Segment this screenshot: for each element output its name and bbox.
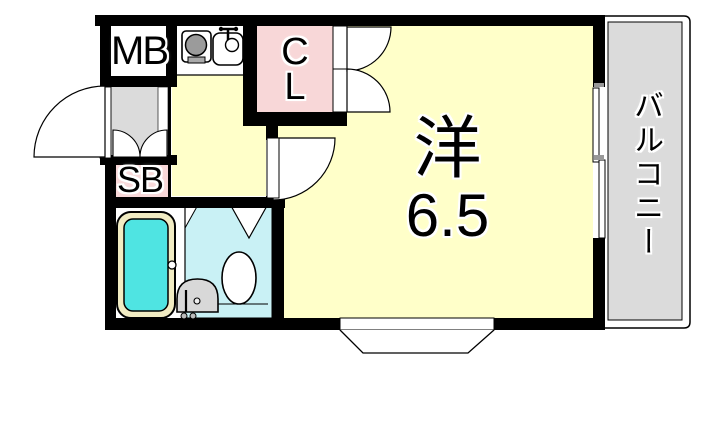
bay-window-bay bbox=[340, 330, 494, 353]
wall-bottom-left-seg bbox=[266, 318, 340, 330]
wall-below-mb bbox=[100, 76, 177, 87]
closet-door-leaf-upper bbox=[333, 26, 347, 69]
sliding-window-cap bbox=[594, 83, 604, 87]
washbasin-foot-left bbox=[181, 313, 187, 319]
main-room-name-label: 洋 bbox=[385, 98, 510, 186]
entrance-door-swing bbox=[34, 86, 105, 157]
washbasin-foot-right bbox=[190, 313, 196, 319]
stove-burner bbox=[186, 35, 207, 56]
room-door-leaf bbox=[267, 138, 279, 198]
floorplan: MB C L SB 洋 6.5 バルコニー bbox=[0, 0, 716, 424]
sink-drain bbox=[226, 39, 239, 52]
balcony-label: バルコニー bbox=[616, 60, 674, 290]
sliding-window-latch bbox=[594, 155, 604, 160]
washbasin-drain bbox=[194, 298, 200, 304]
toilet-bowl bbox=[222, 252, 256, 304]
sliding-window-panel-2 bbox=[599, 160, 605, 238]
meter-box-label: MB bbox=[109, 26, 169, 76]
main-room-size-label: 6.5 bbox=[385, 182, 510, 248]
wall-bottom-right-seg bbox=[494, 318, 605, 330]
closet-door-leaf-lower bbox=[333, 69, 347, 112]
stove bbox=[182, 31, 211, 63]
wall-bathroom-bottom bbox=[105, 318, 285, 330]
sliding-window bbox=[593, 83, 605, 238]
bathtub bbox=[117, 212, 176, 318]
bathtub-knob bbox=[168, 261, 176, 269]
wall-bathroom-right bbox=[272, 197, 284, 330]
faucet-knob-right bbox=[234, 27, 238, 31]
wall-counter-closet bbox=[243, 15, 257, 115]
washbasin-body bbox=[177, 279, 218, 312]
wall-right-lower bbox=[593, 238, 605, 330]
closet-label: C L bbox=[257, 26, 333, 114]
wall-right-upper bbox=[593, 15, 605, 87]
bathtub-water bbox=[124, 219, 168, 311]
floorplan-drawing bbox=[0, 0, 716, 424]
shoe-box-label: SB bbox=[110, 161, 170, 199]
faucet-knob-left bbox=[219, 27, 223, 31]
bay-window bbox=[340, 318, 494, 353]
wall-closet-bottom bbox=[243, 112, 347, 126]
sliding-window-panel-1 bbox=[593, 88, 599, 162]
bay-window-sill bbox=[340, 318, 494, 330]
stove-handle bbox=[188, 57, 205, 63]
